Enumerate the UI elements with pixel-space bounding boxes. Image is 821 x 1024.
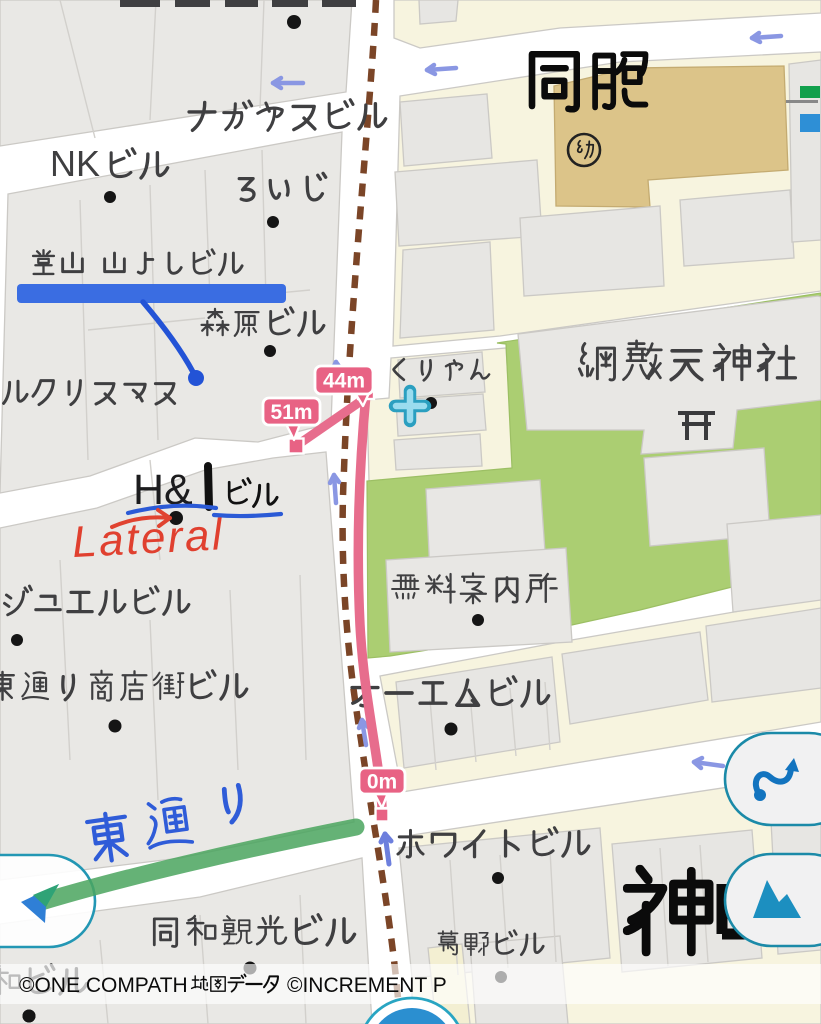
svg-text:0m: 0m (367, 771, 397, 794)
svg-text:©INCREMENT P: ©INCREMENT P (287, 974, 447, 997)
svg-text:51m: 51m (270, 401, 312, 424)
svg-text:44m: 44m (323, 370, 365, 393)
svg-text:©ONE COMPATH: ©ONE COMPATH (19, 974, 188, 997)
svg-text:Lateral: Lateral (71, 510, 225, 567)
svg-text:NK: NK (50, 143, 100, 184)
